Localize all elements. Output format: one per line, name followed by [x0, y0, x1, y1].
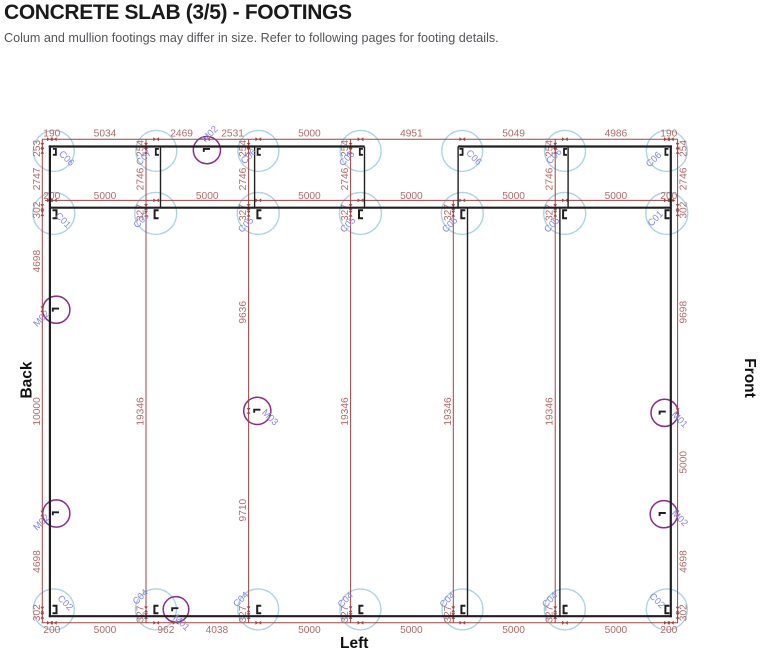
- svg-text:M03: M03: [259, 407, 280, 428]
- svg-text:C04: C04: [540, 590, 560, 610]
- svg-text:2747: 2747: [32, 167, 43, 190]
- svg-text:5000: 5000: [502, 625, 525, 636]
- svg-text:C06: C06: [56, 149, 76, 169]
- svg-text:5000: 5000: [605, 625, 628, 636]
- svg-text:C02: C02: [647, 591, 667, 611]
- svg-text:5000: 5000: [196, 191, 219, 202]
- svg-text:4698: 4698: [32, 550, 43, 573]
- svg-text:4698: 4698: [32, 250, 43, 273]
- svg-text:254: 254: [678, 140, 689, 157]
- svg-text:302: 302: [32, 201, 43, 218]
- svg-text:5000: 5000: [94, 625, 117, 636]
- svg-text:5000: 5000: [605, 191, 628, 202]
- svg-text:5000: 5000: [678, 451, 689, 474]
- svg-text:2531: 2531: [221, 129, 244, 140]
- svg-text:302: 302: [678, 604, 689, 621]
- svg-text:C06: C06: [464, 148, 484, 168]
- svg-text:190: 190: [660, 129, 677, 140]
- svg-text:2746: 2746: [545, 167, 556, 190]
- svg-text:2469: 2469: [170, 129, 193, 140]
- svg-text:2746: 2746: [340, 167, 351, 190]
- svg-text:5000: 5000: [298, 191, 321, 202]
- svg-text:C04: C04: [336, 590, 356, 610]
- svg-text:4951: 4951: [400, 129, 423, 140]
- svg-text:10000: 10000: [32, 397, 43, 426]
- svg-text:19346: 19346: [443, 397, 454, 426]
- svg-text:4038: 4038: [206, 625, 229, 636]
- svg-text:5034: 5034: [94, 129, 117, 140]
- svg-text:19346: 19346: [136, 397, 147, 426]
- svg-text:962: 962: [157, 625, 174, 636]
- svg-text:5000: 5000: [94, 191, 117, 202]
- svg-text:C04: C04: [438, 590, 458, 610]
- svg-text:2746: 2746: [136, 167, 147, 190]
- svg-text:5000: 5000: [298, 129, 321, 140]
- svg-text:5000: 5000: [400, 191, 423, 202]
- svg-text:253: 253: [32, 140, 43, 157]
- svg-text:19346: 19346: [545, 397, 556, 426]
- svg-text:C01: C01: [646, 209, 666, 229]
- svg-text:C02: C02: [55, 593, 75, 613]
- svg-text:5000: 5000: [502, 191, 525, 202]
- svg-text:302: 302: [32, 604, 43, 621]
- svg-text:5000: 5000: [400, 625, 423, 636]
- svg-text:5049: 5049: [502, 129, 525, 140]
- svg-text:200: 200: [660, 191, 677, 202]
- svg-text:302: 302: [678, 201, 689, 218]
- svg-text:327: 327: [136, 605, 147, 622]
- svg-text:4698: 4698: [678, 550, 689, 573]
- svg-text:M01: M01: [669, 410, 690, 431]
- svg-text:4986: 4986: [605, 129, 628, 140]
- svg-text:9636: 9636: [238, 301, 249, 324]
- svg-text:200: 200: [43, 625, 60, 636]
- svg-text:200: 200: [43, 191, 60, 202]
- svg-text:2746: 2746: [238, 167, 249, 190]
- svg-text:190: 190: [43, 129, 60, 140]
- svg-text:200: 200: [660, 625, 677, 636]
- svg-text:2746: 2746: [678, 167, 689, 190]
- svg-text:9710: 9710: [238, 498, 249, 521]
- svg-text:9698: 9698: [678, 301, 689, 324]
- svg-text:5000: 5000: [298, 625, 321, 636]
- svg-text:19346: 19346: [340, 397, 351, 426]
